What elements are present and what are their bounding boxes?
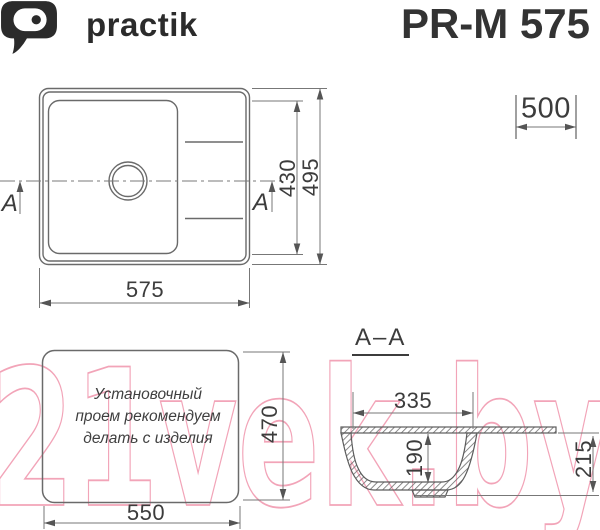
dim-label-total-215: 215 bbox=[571, 440, 597, 478]
top-view-outline bbox=[40, 89, 250, 265]
dim-label-bowltop-335: 335 bbox=[394, 388, 432, 414]
dim-label-overall-495: 495 bbox=[298, 158, 324, 196]
product-drawing-page: 21vek.by bbox=[0, 0, 600, 530]
dim-label-depth-190: 190 bbox=[402, 439, 428, 477]
section-marker-a-left: A bbox=[2, 190, 19, 218]
install-note-line1: Установочный bbox=[50, 384, 246, 406]
dim-label-cutout-550: 550 bbox=[127, 500, 165, 526]
dim-label-cutout-470: 470 bbox=[257, 405, 283, 443]
section-profile bbox=[341, 427, 556, 497]
dim-label-cabinet-500: 500 bbox=[521, 93, 571, 126]
install-note-line3: делать с изделия bbox=[50, 428, 246, 450]
section-dimensions bbox=[353, 392, 599, 496]
section-title-aa: A–A bbox=[352, 324, 409, 356]
dim-label-width-575: 575 bbox=[126, 277, 164, 303]
model-number: PR-M 575 bbox=[401, 0, 590, 48]
install-note-line2: проем рекомендуем bbox=[50, 406, 246, 428]
install-note: Установочный проем рекомендуем делать с … bbox=[50, 384, 246, 450]
section-marker-a-right: A bbox=[253, 189, 270, 217]
top-view-dimensions bbox=[20, 89, 576, 309]
drawing-linework bbox=[0, 0, 600, 530]
brand-name: practik bbox=[86, 6, 198, 44]
brand-logo-icon bbox=[0, 0, 58, 54]
dimension-arrowheads bbox=[17, 89, 597, 527]
